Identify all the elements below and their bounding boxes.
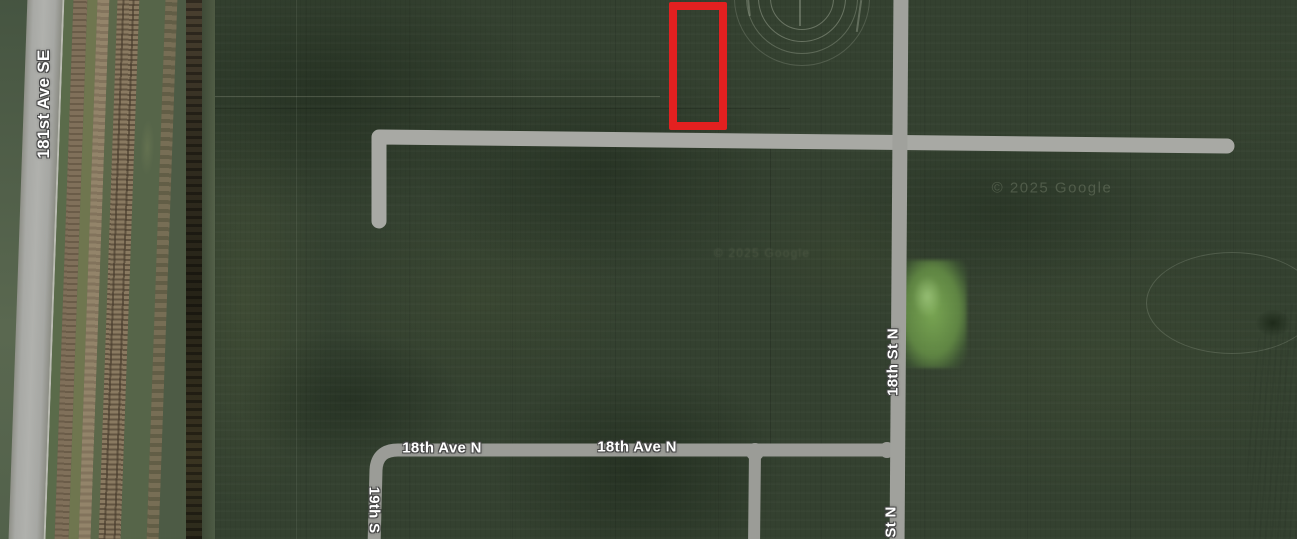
field-boundary-line (190, 96, 660, 97)
road-label-18th-st-n: 18th St N (885, 328, 902, 396)
road-label-18th-ave-n: 18th Ave N (597, 439, 676, 456)
road-label-19th-st-partial: 19th S (366, 487, 383, 534)
road-label-181st-ave-se: 181st Ave SE (34, 49, 54, 158)
roadside-verge (0, 0, 215, 539)
tire-track (799, 0, 801, 26)
satellite-map[interactable]: 181st Ave SE 18th Ave N 18th Ave N 18th … (0, 0, 1297, 539)
drainage-ditch (186, 0, 202, 539)
road-18th-st-n (897, 0, 901, 539)
road-label-18th-st-n-partial: St N (883, 506, 900, 537)
road-stub-south (754, 450, 755, 539)
google-watermark: © 2025 Google (992, 180, 1113, 197)
road-18th-ave-n (374, 450, 887, 539)
field-boundary-line (770, 140, 771, 450)
road-label-18th-ave-n: 18th Ave N (402, 440, 481, 457)
ditch-edge (202, 0, 215, 539)
parcel-highlight (669, 2, 727, 130)
vegetation-patch (903, 260, 967, 368)
road-junction-bulge (746, 443, 764, 461)
google-watermark: © 2025 Google (714, 246, 811, 260)
field-boundary-line (296, 0, 297, 539)
tractor-turn-marks (734, 0, 870, 66)
tree-clump (1256, 310, 1290, 336)
road-junction-bulge (879, 442, 895, 458)
